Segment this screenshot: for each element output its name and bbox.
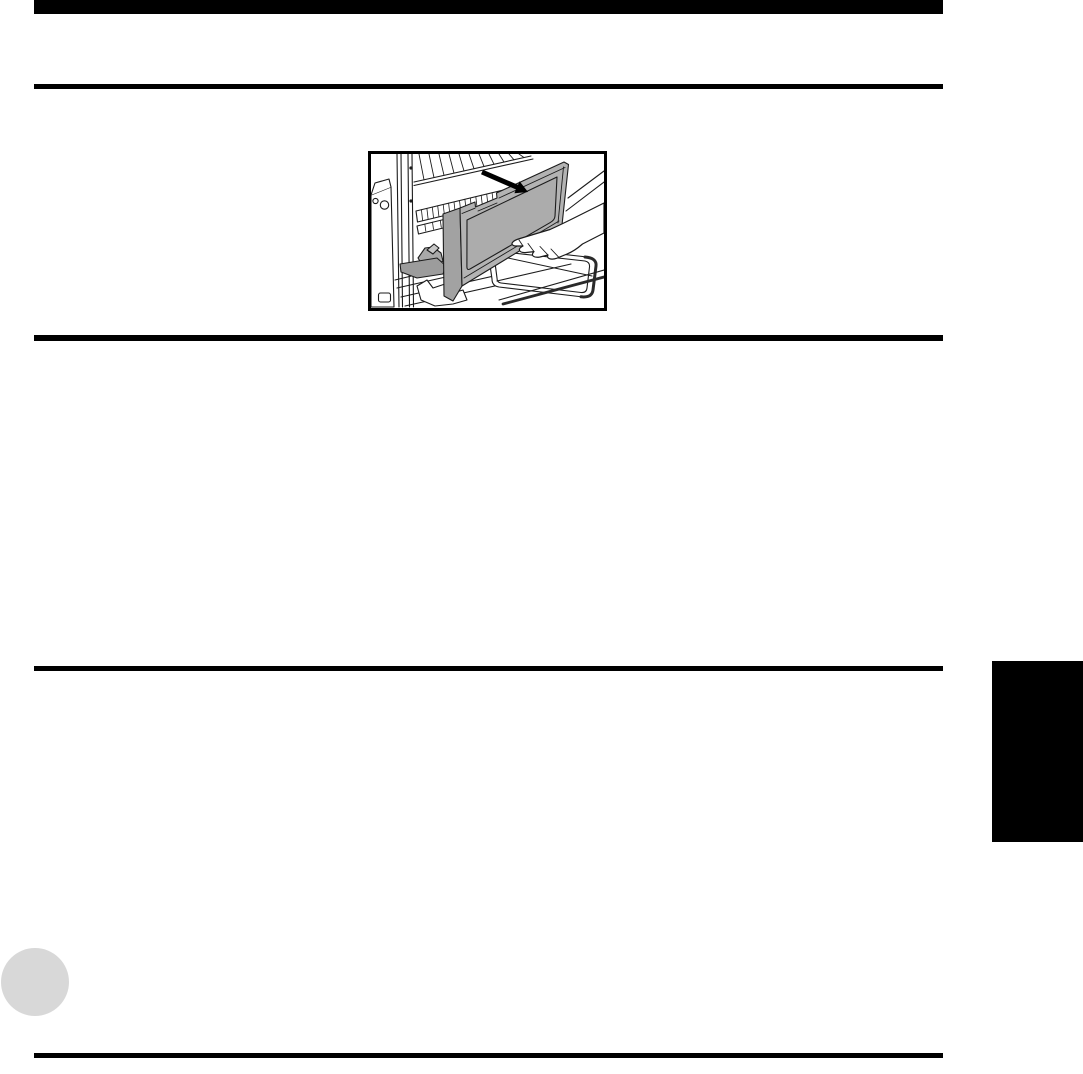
printer-screw-hole-large bbox=[380, 201, 388, 209]
section-rule-1 bbox=[34, 335, 943, 341]
frame-edge-lines bbox=[566, 171, 604, 211]
header-top-bar bbox=[34, 0, 943, 14]
printer-label-plate bbox=[379, 293, 391, 302]
frame-post-lines bbox=[397, 154, 414, 307]
printer-top-hatch bbox=[414, 154, 533, 186]
printer-screw-hole-small bbox=[373, 198, 378, 203]
page-number-marker bbox=[1, 948, 69, 1016]
frame-screw-top bbox=[410, 167, 412, 169]
frame-screw-mid bbox=[410, 200, 412, 202]
cover-end-cap bbox=[443, 208, 462, 301]
chapter-side-tab bbox=[992, 661, 1083, 842]
printer-body bbox=[371, 179, 394, 307]
printer-illustration bbox=[371, 154, 604, 308]
footer-rule bbox=[34, 1053, 943, 1058]
top-hatch-lines bbox=[419, 154, 524, 180]
top-hatch-boundary bbox=[414, 156, 533, 186]
frame-edges bbox=[566, 171, 604, 211]
printer-frame-post bbox=[397, 154, 414, 307]
header-rule bbox=[34, 84, 943, 89]
lever-arm bbox=[400, 258, 446, 278]
section-rule-2 bbox=[34, 666, 943, 671]
figure-cover-removal bbox=[368, 151, 607, 311]
